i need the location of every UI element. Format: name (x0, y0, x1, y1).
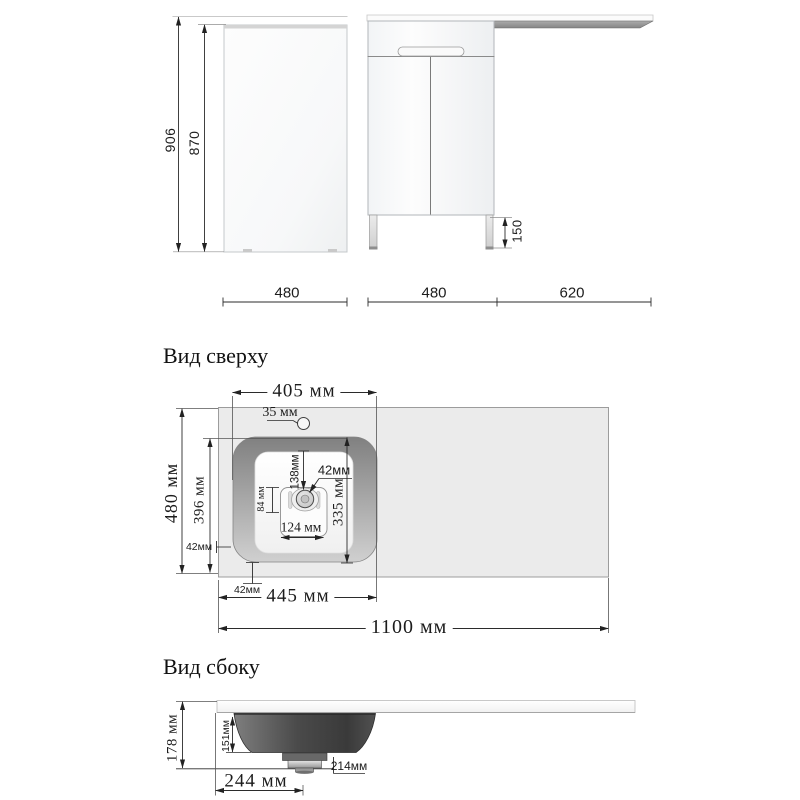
dim-front-side-width: 480 (274, 286, 299, 301)
front-view-drawing (173, 15, 653, 252)
drain-flange (288, 761, 322, 769)
dim-side-basin-bottom-width: 244 мм (224, 772, 287, 791)
side-panel-top-edge (224, 25, 347, 29)
dim-side-basin-height: 151мм (221, 720, 232, 752)
dim-top-countertop-width: 1100 мм (366, 617, 453, 637)
dim-top-basin-depth-inner: 335 мм (332, 478, 347, 526)
dim-top-faucet-hole: 35 мм (262, 406, 297, 420)
dim-top-basin-width: 405 мм (267, 382, 340, 401)
dim-side-drain-offset: 214мм (331, 760, 368, 772)
drain-base (283, 753, 328, 761)
dim-front-cabinet-height: 870 (187, 131, 201, 156)
top-view-title: Вид сверху (163, 343, 268, 369)
top-view-drawing (219, 408, 609, 578)
dim-top-plate-height: 84 мм (257, 486, 267, 511)
dim-top-drain-offset: 138мм (290, 455, 302, 490)
cabinet-leg-right (486, 215, 493, 248)
dim-front-total-height: 906 (163, 128, 177, 153)
dim-top-front-gap: 42мм (234, 585, 260, 596)
dim-top-countertop-depth: 480 мм (162, 463, 180, 523)
dim-top-side-gap: 42мм (186, 542, 212, 553)
dim-front-cabinet-width: 480 (421, 286, 446, 301)
countertop-side-view (217, 701, 635, 713)
side-view-title: Вид сбоку (163, 654, 260, 680)
dim-top-drain-hole: 42мм (318, 464, 350, 477)
dim-top-basin-depth-outer: 396 мм (193, 476, 208, 524)
dim-side-total-height: 178 мм (166, 714, 181, 762)
dim-front-leg-height: 150 (511, 219, 524, 242)
drawing-linework (0, 0, 800, 800)
dim-top-plate-width: 124 мм (281, 520, 322, 534)
countertop-front-strip (367, 15, 653, 21)
vanity-technical-drawing: 906 870 150 480 480 620 Вид сверху 405 м… (0, 0, 800, 800)
countertop-edge-profile (494, 21, 653, 28)
dim-front-countertop-overhang: 620 (559, 286, 584, 301)
cabinet-side-panel (224, 25, 347, 252)
side-view-drawing (217, 701, 635, 774)
faucet-hole (298, 418, 310, 430)
cabinet-leg-left (370, 215, 378, 248)
basin-side-profile (234, 714, 376, 753)
dim-top-basin-outer-width: 445 мм (261, 587, 334, 606)
drawer-handle-recess (398, 47, 464, 56)
